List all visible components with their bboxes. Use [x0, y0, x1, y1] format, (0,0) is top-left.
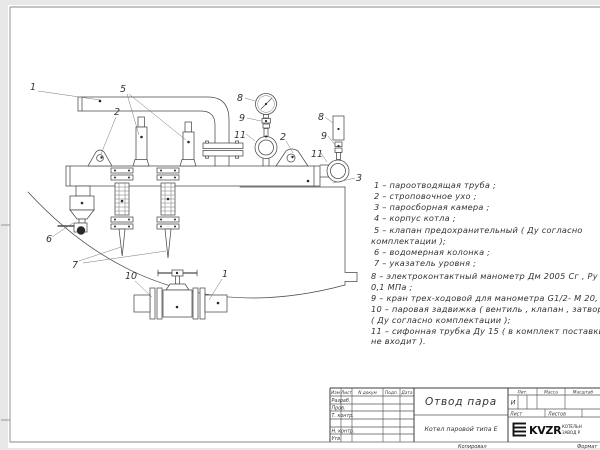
tb-scale-label: Масштаб	[573, 390, 594, 396]
callout-label: 1	[30, 82, 36, 93]
product-name: Котел паровой типа Е	[424, 426, 497, 433]
legend-line: не входит ).	[371, 336, 426, 346]
footer-format: Формат	[577, 444, 598, 450]
valve-body	[163, 290, 192, 317]
callout-label: 2	[114, 107, 120, 118]
callout-label: 9	[239, 113, 245, 124]
steam-chamber	[66, 165, 329, 186]
tb-sheet-label: Лист	[509, 411, 522, 417]
drawing-sheet-screenshot: 1 5 2 8 9 11 2 8 9 11 3 6 7 10 1 1 – пар…	[0, 0, 600, 450]
legend-line: ( Ду согласно комплектации );	[371, 315, 511, 325]
tb-row-prov: Пров.	[332, 406, 346, 412]
tb-lit-label: Лит.	[517, 390, 528, 396]
legend-line: 0,1 МПа ;	[371, 282, 412, 292]
callout-label: 11	[234, 130, 246, 141]
tb-col-list: Лист	[340, 390, 352, 396]
legend-line: 3 – паросборная камера ;	[374, 202, 490, 212]
callout-label: 3	[356, 173, 362, 184]
pipe-flange	[203, 143, 243, 149]
tb-lit-value: И	[511, 399, 516, 407]
logo-sub-line1: КОТЕЛЬН	[562, 424, 582, 429]
callout-label: 8	[318, 112, 324, 123]
tb-col-data: Дата	[400, 390, 412, 396]
footer-copied-by: Копировал	[458, 444, 487, 450]
drawing-sheet: 1 5 2 8 9 11 2 8 9 11 3 6 7 10 1 1 – пар…	[0, 0, 600, 450]
legend-line: 4 – корпус котла ;	[374, 213, 456, 223]
tb-row-nkontr: Н. контр.	[332, 429, 355, 435]
legend-line: комплектации );	[371, 236, 446, 246]
legend-line: 8 – электроконтактный манометр Дм 2005 С…	[371, 271, 598, 281]
tb-row-tkontr: Т. контр.	[332, 413, 354, 419]
callout-label: 11	[311, 149, 323, 160]
legend-line: 5 – клапан предохранительный ( Ду соглас…	[374, 225, 583, 235]
tb-col-podp: Подп.	[385, 390, 398, 396]
legend-line: 1 – пароотводящая труба ;	[374, 180, 496, 190]
legend-line: 10 – паровая задвижка ( вентиль , клапан…	[371, 304, 600, 314]
tb-col-izm: Изм	[331, 390, 340, 396]
callout-label: 5	[120, 84, 126, 95]
tb-mass-label: Масса	[544, 390, 558, 396]
callout-label: 9	[321, 131, 327, 142]
tb-row-razrab: Разраб.	[332, 398, 351, 404]
logo-sub-line2: ЗАВОД Р	[562, 430, 581, 435]
callout-label: 10	[125, 271, 137, 282]
legend-line: 7 – указатель уровня ;	[374, 258, 476, 268]
drawing-title: Отвод пара	[425, 396, 497, 408]
callout-label: 2	[280, 132, 286, 143]
callout-label: 6	[46, 234, 52, 245]
legend-line: 11 – сифонная трубка Ду 15 ( в комплект …	[371, 326, 600, 336]
callout-label: 8	[237, 93, 243, 104]
callout-label: 7	[72, 260, 78, 271]
callout-label: 1	[222, 269, 228, 280]
legend-line: 6 – водомерная колонка ;	[374, 247, 490, 257]
tb-col-ndokum: N докум	[358, 390, 377, 396]
legend-line: 2 – строповочное ухо ;	[374, 191, 477, 201]
tb-sheets-label: Листов	[547, 411, 566, 417]
tb-row-utv: Утв.	[332, 436, 342, 442]
logo-name: KVZR	[529, 424, 562, 437]
legend-line: 9 – кран трех-ходовой для манометра G1/2…	[371, 293, 598, 303]
